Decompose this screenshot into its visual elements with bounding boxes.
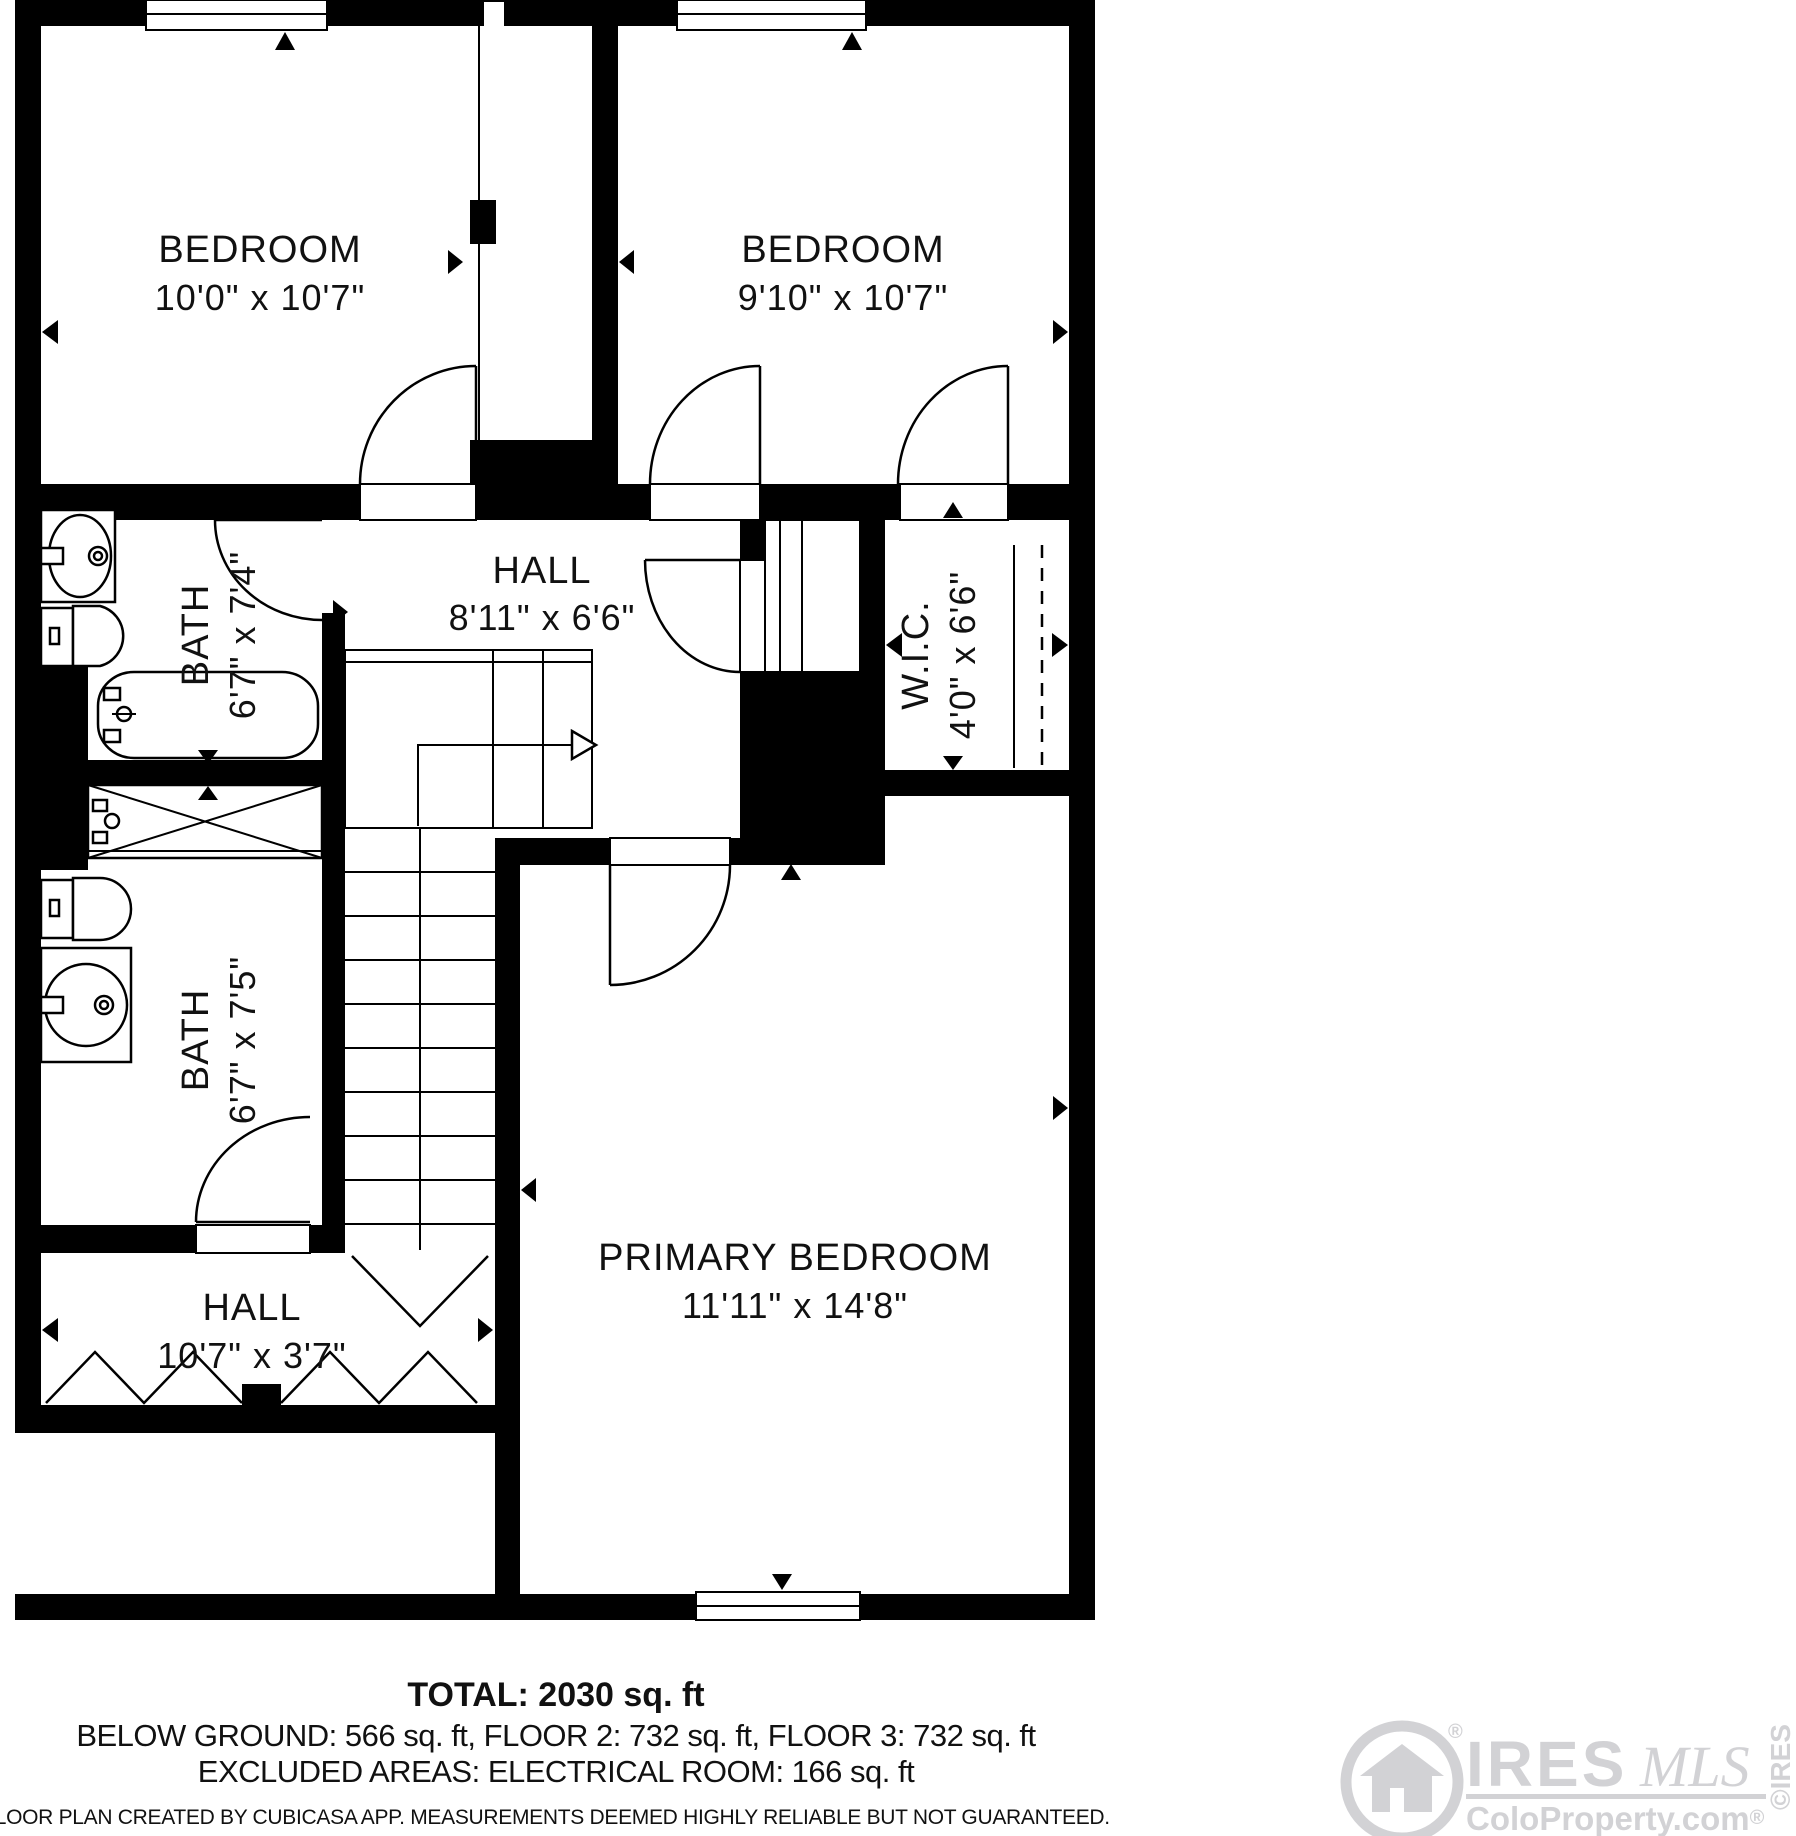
room-label-primary-bedroom: PRIMARY BEDROOM 11'11" x 14'8" bbox=[598, 1237, 992, 1326]
staircase bbox=[345, 650, 596, 1326]
linen-closet bbox=[765, 520, 860, 672]
floor-plan-page: BEDROOM 10'0" x 10'7" BEDROOM 9'10" x 10… bbox=[0, 0, 1796, 1836]
area-summary: TOTAL: 2030 sq. ft BELOW GROUND: 566 sq.… bbox=[0, 1676, 1110, 1829]
bath-lower-dims: 6'7" x 7'5" bbox=[222, 956, 263, 1124]
ires-house-icon bbox=[1346, 1726, 1458, 1836]
bedroom-left-name: BEDROOM bbox=[158, 229, 361, 271]
window-bedroom-left bbox=[146, 0, 327, 30]
registered-mark: ® bbox=[1448, 1721, 1463, 1743]
primary-bedroom-name: PRIMARY BEDROOM bbox=[598, 1237, 992, 1279]
mls-script-text: MLS bbox=[1639, 1734, 1750, 1799]
excluded-areas-text: EXCLUDED AREAS: ELECTRICAL ROOM: 166 sq.… bbox=[198, 1754, 915, 1789]
wic-name: W.I.C. bbox=[895, 600, 937, 709]
room-label-hall-upper: HALL 8'11" x 6'6" bbox=[449, 550, 636, 638]
door-wic bbox=[898, 366, 1008, 520]
hall-upper-dims: 8'11" x 6'6" bbox=[449, 597, 636, 638]
total-area-text: TOTAL: 2030 sq. ft bbox=[407, 1676, 704, 1714]
bath-upper-dims: 6'7" x 7'4" bbox=[222, 551, 263, 719]
stair-direction-arrow bbox=[418, 731, 596, 826]
ires-mls-logo: ® IRES MLS ColoProperty.com® ©IRES bbox=[1346, 1721, 1796, 1836]
toilet-icon bbox=[41, 606, 123, 666]
ires-brand-text: IRES bbox=[1466, 1728, 1627, 1800]
door-bedroom-right bbox=[650, 366, 760, 520]
door-hall-right bbox=[645, 560, 765, 672]
wic-dims: 4'0" x 6'6" bbox=[942, 571, 983, 739]
door-bedroom-left bbox=[360, 366, 476, 520]
window-primary-bedroom bbox=[696, 1592, 860, 1620]
bedroom-right-dims: 9'10" x 10'7" bbox=[738, 277, 948, 318]
copyright-side-text: ©IRES bbox=[1765, 1724, 1796, 1810]
hall-upper-name: HALL bbox=[492, 550, 591, 592]
stair-entry-chevron bbox=[352, 1256, 488, 1326]
bedroom-right-name: BEDROOM bbox=[741, 229, 944, 271]
window-bedroom-right bbox=[677, 0, 866, 30]
room-label-hall-lower: HALL 10'7" x 3'7" bbox=[157, 1287, 346, 1376]
bath-lower-name: BATH bbox=[175, 989, 217, 1092]
door-primary-bedroom bbox=[610, 838, 730, 985]
room-label-bedroom-right: BEDROOM 9'10" x 10'7" bbox=[738, 229, 948, 318]
room-label-bedroom-left: BEDROOM 10'0" x 10'7" bbox=[155, 229, 365, 318]
primary-bedroom-dims: 11'11" x 14'8" bbox=[682, 1285, 908, 1326]
disclaimer-text: FLOOR PLAN CREATED BY CUBICASA APP. MEAS… bbox=[0, 1806, 1110, 1829]
floor-plan-drawing: BEDROOM 10'0" x 10'7" BEDROOM 9'10" x 10… bbox=[0, 0, 1796, 1836]
logo-underline bbox=[1466, 1794, 1766, 1799]
door-bath-lower bbox=[196, 1117, 310, 1253]
sink-icon bbox=[41, 510, 115, 602]
coloproperty-text: ColoProperty.com® bbox=[1466, 1800, 1765, 1836]
toilet-icon bbox=[41, 878, 131, 940]
hall-lower-name: HALL bbox=[202, 1287, 301, 1329]
room-label-wic: W.I.C. 4'0" x 6'6" bbox=[895, 571, 983, 739]
floor-breakdown-text: BELOW GROUND: 566 sq. ft, FLOOR 2: 732 s… bbox=[76, 1718, 1036, 1753]
room-label-bath-lower: BATH 6'7" x 7'5" bbox=[175, 956, 263, 1124]
wic-closet-rail bbox=[1014, 545, 1042, 768]
bedroom-left-dims: 10'0" x 10'7" bbox=[155, 277, 365, 318]
bath-upper-name: BATH bbox=[175, 584, 217, 687]
hall-lower-dims: 10'7" x 3'7" bbox=[157, 1335, 346, 1376]
sink-icon bbox=[41, 948, 131, 1062]
